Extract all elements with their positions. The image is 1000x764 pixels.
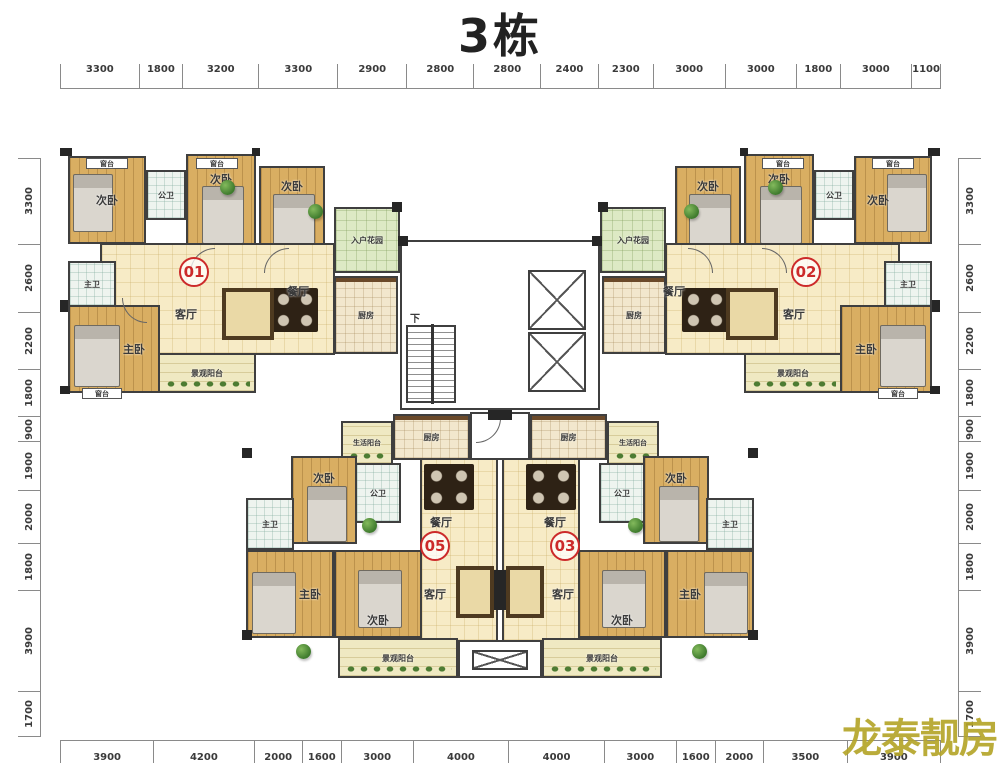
- room-label: 次卧: [313, 470, 335, 486]
- room-public-bath: 公卫: [814, 170, 854, 220]
- dimension-value: 2800: [426, 64, 454, 75]
- room-label-dining: 餐厅: [544, 514, 566, 530]
- unit-01-badge: 01: [179, 257, 209, 287]
- room-label: 次卧: [611, 612, 633, 628]
- room-bedroom: 次卧: [854, 156, 932, 244]
- room-bedroom: 次卧: [643, 456, 709, 544]
- wall-segment: [494, 570, 506, 610]
- room-kitchen: 厨房: [393, 414, 470, 460]
- room-bedroom: 次卧: [68, 156, 146, 244]
- dimension-segment: 3500: [764, 741, 848, 763]
- room-master-bath: 主卫: [246, 498, 294, 550]
- room-label: 次卧: [665, 470, 687, 486]
- room-label: 次卧: [367, 612, 389, 628]
- tv-feature-wall: [222, 288, 274, 340]
- dimension-segment: 3000: [654, 64, 726, 88]
- dimension-segment: 4000: [414, 741, 510, 763]
- room-label: 次卧: [867, 192, 889, 208]
- dimension-row-bottom: 3900420020001600300040004000300016002000…: [60, 740, 941, 763]
- dimension-value: 2000: [965, 503, 976, 531]
- dimension-value: 1900: [965, 452, 976, 480]
- dimension-segment: 1800: [797, 64, 840, 88]
- dimension-value: 900: [965, 419, 976, 440]
- dimension-value: 2000: [264, 752, 292, 763]
- wall-segment: [60, 300, 68, 312]
- room-label: 厨房: [561, 432, 577, 443]
- wall-segment: [598, 202, 608, 212]
- wall-segment: [592, 236, 602, 246]
- bed: [252, 572, 296, 634]
- dimension-segment: 4200: [154, 741, 254, 763]
- dining-table: [682, 288, 728, 332]
- bed: [273, 194, 315, 246]
- room-master-bath: 主卫: [706, 498, 754, 550]
- dimension-segment: 3000: [726, 64, 798, 88]
- bed: [880, 325, 926, 387]
- dimension-column-right: 330026002200180090019002000180039001700: [958, 158, 981, 737]
- window-sill: 窗台: [762, 158, 804, 169]
- window-sill: 窗台: [82, 388, 122, 399]
- dimension-segment: 2800: [407, 64, 474, 88]
- dimension-segment: 3000: [342, 741, 414, 763]
- room-label: 主卫: [262, 519, 278, 530]
- dimension-segment: 3200: [183, 64, 259, 88]
- room-label: 主卫: [84, 279, 100, 290]
- room-entry-garden: 入户花园: [600, 207, 666, 273]
- tv-feature-wall: [506, 566, 544, 618]
- dimension-segment: 3000: [841, 64, 913, 88]
- dimension-value: 1800: [147, 64, 175, 75]
- dimension-segment: 3900: [18, 591, 40, 692]
- dimension-value: 3900: [24, 627, 35, 655]
- dimension-value: 3000: [675, 64, 703, 75]
- room-kitchen: 厨房: [530, 414, 607, 460]
- unit-05-badge: 05: [420, 531, 450, 561]
- room-label-dining: 餐厅: [287, 283, 309, 299]
- dimension-value: 1800: [24, 379, 35, 407]
- elevator-shaft: [528, 270, 586, 330]
- room-bedroom: 次卧: [578, 550, 666, 638]
- dimension-segment: 2000: [18, 491, 40, 543]
- dimension-segment: 1100: [912, 64, 941, 88]
- dimension-segment: 1600: [677, 741, 716, 763]
- dimension-segment: 1900: [18, 442, 40, 492]
- wall-segment: [242, 448, 252, 458]
- dimension-value: 2600: [965, 264, 976, 292]
- dimension-row-top: 3300180032003300290028002800240023003000…: [60, 64, 941, 89]
- dimension-value: 900: [24, 419, 35, 440]
- window-sill: 窗台: [872, 158, 914, 169]
- dimension-value: 3300: [86, 64, 114, 75]
- bed: [760, 186, 802, 244]
- dimension-value: 1100: [912, 64, 940, 75]
- dining-table: [526, 464, 576, 510]
- room-label: 景观阳台: [191, 368, 223, 379]
- plant: [296, 644, 311, 659]
- dimension-value: 3500: [791, 752, 819, 763]
- dimension-segment: 1900: [959, 442, 981, 492]
- bed: [307, 486, 347, 542]
- wall-segment: [748, 448, 758, 458]
- room-master-bedroom: 主卧: [840, 305, 932, 393]
- dimension-value: 3000: [862, 64, 890, 75]
- wall-segment: [932, 300, 940, 312]
- room-view-balcony: 景观阳台: [744, 353, 842, 393]
- window-sill: 窗台: [878, 388, 918, 399]
- dimension-segment: 1800: [18, 370, 40, 417]
- dimension-value: 3300: [24, 187, 35, 215]
- room-label: 主卫: [900, 279, 916, 290]
- room-label: 主卫: [722, 519, 738, 530]
- dimension-value: 2900: [358, 64, 386, 75]
- dimension-value: 1800: [965, 553, 976, 581]
- room-view-balcony: 景观阳台: [158, 353, 256, 393]
- elevator-shaft: [528, 332, 586, 392]
- room-label: 生活阳台: [619, 438, 647, 448]
- wall-segment: [392, 202, 402, 212]
- unit-03-badge: 03: [550, 531, 580, 561]
- dimension-value: 2400: [556, 64, 584, 75]
- dimension-segment: 1800: [140, 64, 183, 88]
- wall-segment: [740, 148, 748, 156]
- window-sill: 窗台: [196, 158, 238, 169]
- room-label: 生活阳台: [353, 438, 381, 448]
- room-public-bath: 公卫: [355, 463, 401, 523]
- bed: [704, 572, 748, 634]
- room-label: 公卫: [826, 190, 842, 201]
- dimension-value: 2200: [24, 327, 35, 355]
- dimension-value: 1800: [24, 553, 35, 581]
- plant: [768, 180, 783, 195]
- dimension-value: 2800: [493, 64, 521, 75]
- tv-feature-wall: [456, 566, 494, 618]
- wall-segment: [928, 148, 940, 156]
- wall-segment: [748, 630, 758, 640]
- room-public-bath: 公卫: [146, 170, 186, 220]
- dimension-value: 3300: [284, 64, 312, 75]
- bed: [659, 486, 699, 542]
- dimension-segment: 2600: [18, 245, 40, 313]
- dimension-value: 3900: [965, 627, 976, 655]
- dimension-segment: 3300: [61, 64, 140, 88]
- dimension-value: 1700: [24, 700, 35, 728]
- wall-segment: [398, 236, 408, 246]
- room-label: 次卧: [281, 178, 303, 194]
- stairs-down-label: 下: [410, 310, 420, 325]
- dimension-segment: 2000: [716, 741, 764, 763]
- dimension-segment: 2300: [599, 64, 654, 88]
- dimension-value: 1800: [965, 379, 976, 407]
- plant: [362, 518, 377, 533]
- plant: [308, 204, 323, 219]
- dimension-segment: 900: [18, 417, 40, 441]
- plant: [692, 644, 707, 659]
- dimension-value: 1900: [24, 452, 35, 480]
- room-label: 厨房: [626, 310, 642, 321]
- dimension-segment: 3900: [959, 591, 981, 692]
- plant: [684, 204, 699, 219]
- room-master-bath: 主卫: [884, 261, 932, 307]
- room-label-living: 客厅: [424, 586, 446, 602]
- dimension-segment: 3300: [959, 159, 981, 245]
- room-label: 景观阳台: [382, 653, 414, 664]
- dimension-segment: 3900: [61, 741, 154, 763]
- window-sill-label: 窗台: [776, 159, 790, 169]
- dimension-segment: 2800: [474, 64, 541, 88]
- dimension-segment: 1800: [959, 370, 981, 417]
- dimension-segment: 1600: [303, 741, 342, 763]
- dimension-value: 3300: [965, 187, 976, 215]
- dimension-value: 2600: [24, 264, 35, 292]
- window-sill-label: 窗台: [886, 159, 900, 169]
- dimension-value: 1600: [682, 752, 710, 763]
- wall-segment: [252, 148, 260, 156]
- window-sill-label: 窗台: [95, 389, 109, 399]
- room-kitchen: 厨房: [602, 276, 666, 354]
- dimension-value: 3000: [747, 64, 775, 75]
- wall-segment: [242, 630, 252, 640]
- room-label: 次卧: [697, 178, 719, 194]
- tv-feature-wall: [726, 288, 778, 340]
- room-label: 景观阳台: [586, 653, 618, 664]
- room-label-dining: 餐厅: [663, 283, 685, 299]
- window-sill-label: 窗台: [891, 389, 905, 399]
- dimension-segment: 3000: [605, 741, 677, 763]
- dimension-value: 3900: [93, 752, 121, 763]
- room-label: 主卧: [855, 341, 877, 357]
- bed: [689, 194, 731, 246]
- room-master-bedroom: 主卧: [246, 550, 334, 638]
- dimension-value: 3000: [626, 752, 654, 763]
- dimension-value: 1800: [804, 64, 832, 75]
- entry-window-symbol: [472, 650, 528, 670]
- plant: [628, 518, 643, 533]
- dimension-column-left: 330026002200180090019002000180039001700: [18, 158, 41, 737]
- room-label: 公卫: [158, 190, 174, 201]
- dimension-segment: 2900: [338, 64, 407, 88]
- dimension-value: 3200: [207, 64, 235, 75]
- room-entry-garden: 入户花园: [334, 207, 400, 273]
- dimension-value: 2300: [612, 64, 640, 75]
- room-label: 主卧: [679, 586, 701, 602]
- wall-segment: [930, 386, 940, 394]
- room-master-bedroom: 主卧: [666, 550, 754, 638]
- dimension-segment: 1700: [18, 692, 40, 737]
- dimension-segment: 3300: [18, 159, 40, 245]
- staircase: [406, 325, 456, 403]
- room-label: 厨房: [358, 310, 374, 321]
- room-label: 入户花园: [617, 235, 649, 246]
- dimension-segment: 2400: [541, 64, 599, 88]
- dimension-segment: 3300: [259, 64, 338, 88]
- plant: [220, 180, 235, 195]
- room-master-bath: 主卫: [68, 261, 116, 307]
- room-label-dining: 餐厅: [430, 514, 452, 530]
- room-kitchen: 厨房: [334, 276, 398, 354]
- room-view-balcony: 景观阳台: [338, 638, 458, 678]
- dimension-segment: 2000: [255, 741, 303, 763]
- dimension-segment: 1800: [959, 544, 981, 591]
- bed: [887, 174, 927, 232]
- dimension-value: 4000: [543, 752, 571, 763]
- dimension-value: 2000: [725, 752, 753, 763]
- wall-segment: [488, 410, 512, 420]
- watermark-logo: 龙泰靓房: [842, 706, 998, 764]
- floorplan-page: 3栋 3300180032003300290028002800240023003…: [0, 0, 1000, 764]
- room-label: 厨房: [424, 432, 440, 443]
- bed: [202, 186, 244, 244]
- dimension-segment: 1800: [18, 544, 40, 591]
- room-label-living: 客厅: [552, 586, 574, 602]
- room-view-balcony: 景观阳台: [542, 638, 662, 678]
- dimension-segment: 2600: [959, 245, 981, 313]
- room-label: 次卧: [96, 192, 118, 208]
- dimension-value: 2000: [24, 503, 35, 531]
- window-sill: 窗台: [86, 158, 128, 169]
- room-label: 主卧: [299, 586, 321, 602]
- dimension-value: 4200: [190, 752, 218, 763]
- window-sill-label: 窗台: [210, 159, 224, 169]
- wall-segment: [60, 386, 70, 394]
- dimension-segment: 2000: [959, 491, 981, 543]
- dimension-segment: 2200: [959, 313, 981, 371]
- room-label: 公卫: [370, 488, 386, 499]
- room-bedroom: 次卧: [291, 456, 357, 544]
- page-title: 3栋: [0, 0, 1000, 66]
- dimension-value: 1600: [308, 752, 336, 763]
- dimension-segment: 2200: [18, 313, 40, 371]
- dimension-value: 2200: [965, 327, 976, 355]
- bed: [74, 325, 120, 387]
- window-sill-label: 窗台: [100, 159, 114, 169]
- room-label: 主卧: [123, 341, 145, 357]
- dimension-segment: 900: [959, 417, 981, 441]
- room-bedroom: 次卧: [334, 550, 422, 638]
- dimension-value: 4000: [447, 752, 475, 763]
- dimension-segment: 4000: [509, 741, 605, 763]
- room-label-living: 客厅: [175, 306, 197, 322]
- room-public-bath: 公卫: [599, 463, 645, 523]
- dining-table: [424, 464, 474, 510]
- room-label: 景观阳台: [777, 368, 809, 379]
- room-label: 公卫: [614, 488, 630, 499]
- room-label-living: 客厅: [783, 306, 805, 322]
- dimension-value: 3000: [363, 752, 391, 763]
- wall-segment: [60, 148, 72, 156]
- unit-02-badge: 02: [791, 257, 821, 287]
- room-label: 入户花园: [351, 235, 383, 246]
